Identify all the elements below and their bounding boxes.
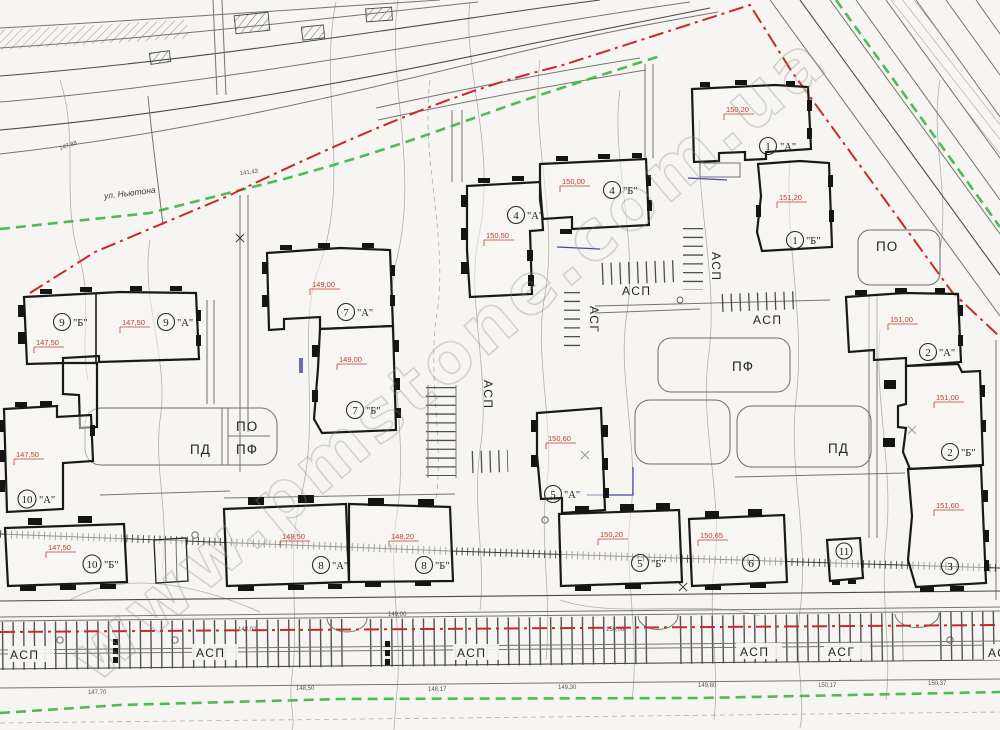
building-letter: "Б" [435, 561, 450, 572]
building-elevation: 151,20 [779, 193, 802, 202]
spot-elevation: 149,30 [558, 685, 577, 691]
building-letter: "Б" [73, 318, 88, 329]
building-10a: 10 "А" 147,50 [0, 401, 95, 512]
area-label-po-left: ПО [236, 419, 258, 434]
building-elevation: 148,20 [391, 532, 414, 541]
building-8b: 8 "Б" 148,20 [349, 498, 453, 587]
building-number: 1 [792, 235, 798, 247]
street-label: ул. Ньютона [102, 185, 156, 201]
parking-label-asp: АСП [988, 646, 1000, 660]
building-2a: 2 "А" 151,00 [846, 288, 963, 366]
site-plan: ул. Ньютона 141,43 147,88 [0, 0, 1000, 730]
building-number: 3 [947, 561, 953, 573]
building-number: 10 [87, 559, 99, 571]
spot-elevation: 148,17 [428, 687, 447, 693]
playground-area-pd-right [737, 406, 871, 467]
building-elevation: 147,50 [16, 450, 39, 459]
building-letter: "А" [564, 490, 580, 501]
building-letter: "Б" [961, 448, 976, 459]
building-elevation: 150,65 [700, 531, 723, 540]
spot-elevation: 149,80 [698, 683, 717, 689]
playground-area-pf [658, 338, 790, 392]
building-number: 2 [925, 347, 931, 359]
building-1b: 1 "Б" 151,20 [756, 161, 834, 251]
building-7a: 7 "А" 149,00 [262, 243, 395, 330]
building-number: 4 [513, 210, 519, 222]
building-10b: 10 "Б" 147,50 [5, 516, 127, 591]
spot-elevation: 148,50 [296, 686, 315, 692]
building-elevation: 147,50 [48, 543, 71, 552]
parking-label-asp: АСП [481, 380, 495, 410]
area-label-pd-right: ПД [828, 441, 849, 456]
building-elevation: 150,00 [562, 177, 585, 186]
parking-label-asp: АСП [457, 646, 487, 660]
spot-elevation: 141,43 [240, 169, 260, 177]
building-number: 8 [318, 560, 324, 572]
building-number: 5 [637, 558, 643, 570]
building-5a: 5 "А" 150,60 [531, 408, 609, 513]
spot-elevation: 149,00 [388, 612, 407, 618]
building-11: 11 [827, 538, 863, 585]
green-utility-bottom [0, 692, 1000, 713]
building-letter: "Б" [104, 560, 119, 571]
building-letter: "А" [939, 348, 955, 359]
building-3: 3 151,60 [908, 466, 989, 592]
spot-elevation: 147,88 [59, 140, 79, 152]
building-letter: "А" [39, 495, 55, 506]
area-label-pd-left: ПД [190, 442, 211, 457]
area-label-pf-right: ПФ [732, 359, 754, 374]
building-number: 7 [343, 307, 349, 319]
building-number: 10 [22, 494, 34, 506]
site-plan-canvas: ул. Ньютона 141,43 147,88 [0, 0, 1000, 730]
building-number: 11 [839, 546, 850, 558]
area-label-pf-left: ПФ [236, 442, 258, 457]
building-letter: "А" [332, 561, 348, 572]
building-number: 6 [748, 558, 754, 570]
parking-label-asp: АСП [622, 284, 652, 298]
building-6: 6 150,65 [689, 509, 787, 590]
building-number: 9 [59, 317, 65, 329]
parking-label-asp: АСП [10, 648, 40, 662]
building-5b: 5 "Б" 150,20 [559, 503, 682, 591]
area-label-po-right: ПО [876, 239, 898, 254]
building-elevation: 147,50 [36, 338, 59, 347]
building-number: 9 [163, 317, 169, 329]
building-elevation: 151,00 [936, 393, 959, 402]
building-number: 8 [421, 560, 427, 572]
parking-label-asp: АСП [753, 313, 783, 327]
parking-label-asg: АСГ [587, 306, 601, 333]
building-elevation: 150,20 [600, 530, 623, 539]
building-number: 2 [947, 447, 953, 459]
building-letter: "А" [177, 318, 193, 329]
building-elevation: 149,00 [339, 355, 362, 364]
building-number: 5 [550, 489, 556, 501]
parking-label-asp: АСП [740, 645, 770, 659]
building-letter: "Б" [651, 559, 666, 570]
building-letter: "А" [527, 211, 543, 222]
building-elevation: 149,00 [312, 280, 335, 289]
parking-label-asg: АСГ [828, 645, 855, 659]
building-elevation: 151,00 [890, 315, 913, 324]
building-elevation: 150,60 [548, 434, 571, 443]
building-letter: "А" [780, 142, 796, 153]
building-elevation: 150,50 [486, 231, 509, 240]
building-letter: "Б" [806, 236, 821, 247]
spot-elevation: 150,37 [928, 681, 947, 687]
building-elevation: 147,50 [122, 318, 145, 327]
parking-label-asp: АСП [709, 252, 723, 282]
building-elevation: 151,60 [936, 501, 959, 510]
parking-label-asp: АСП [196, 646, 226, 660]
building-letter: "А" [357, 308, 373, 319]
spot-elevation: 150,17 [818, 683, 837, 689]
building-2b: 2 "Б" 151,00 [883, 364, 986, 469]
